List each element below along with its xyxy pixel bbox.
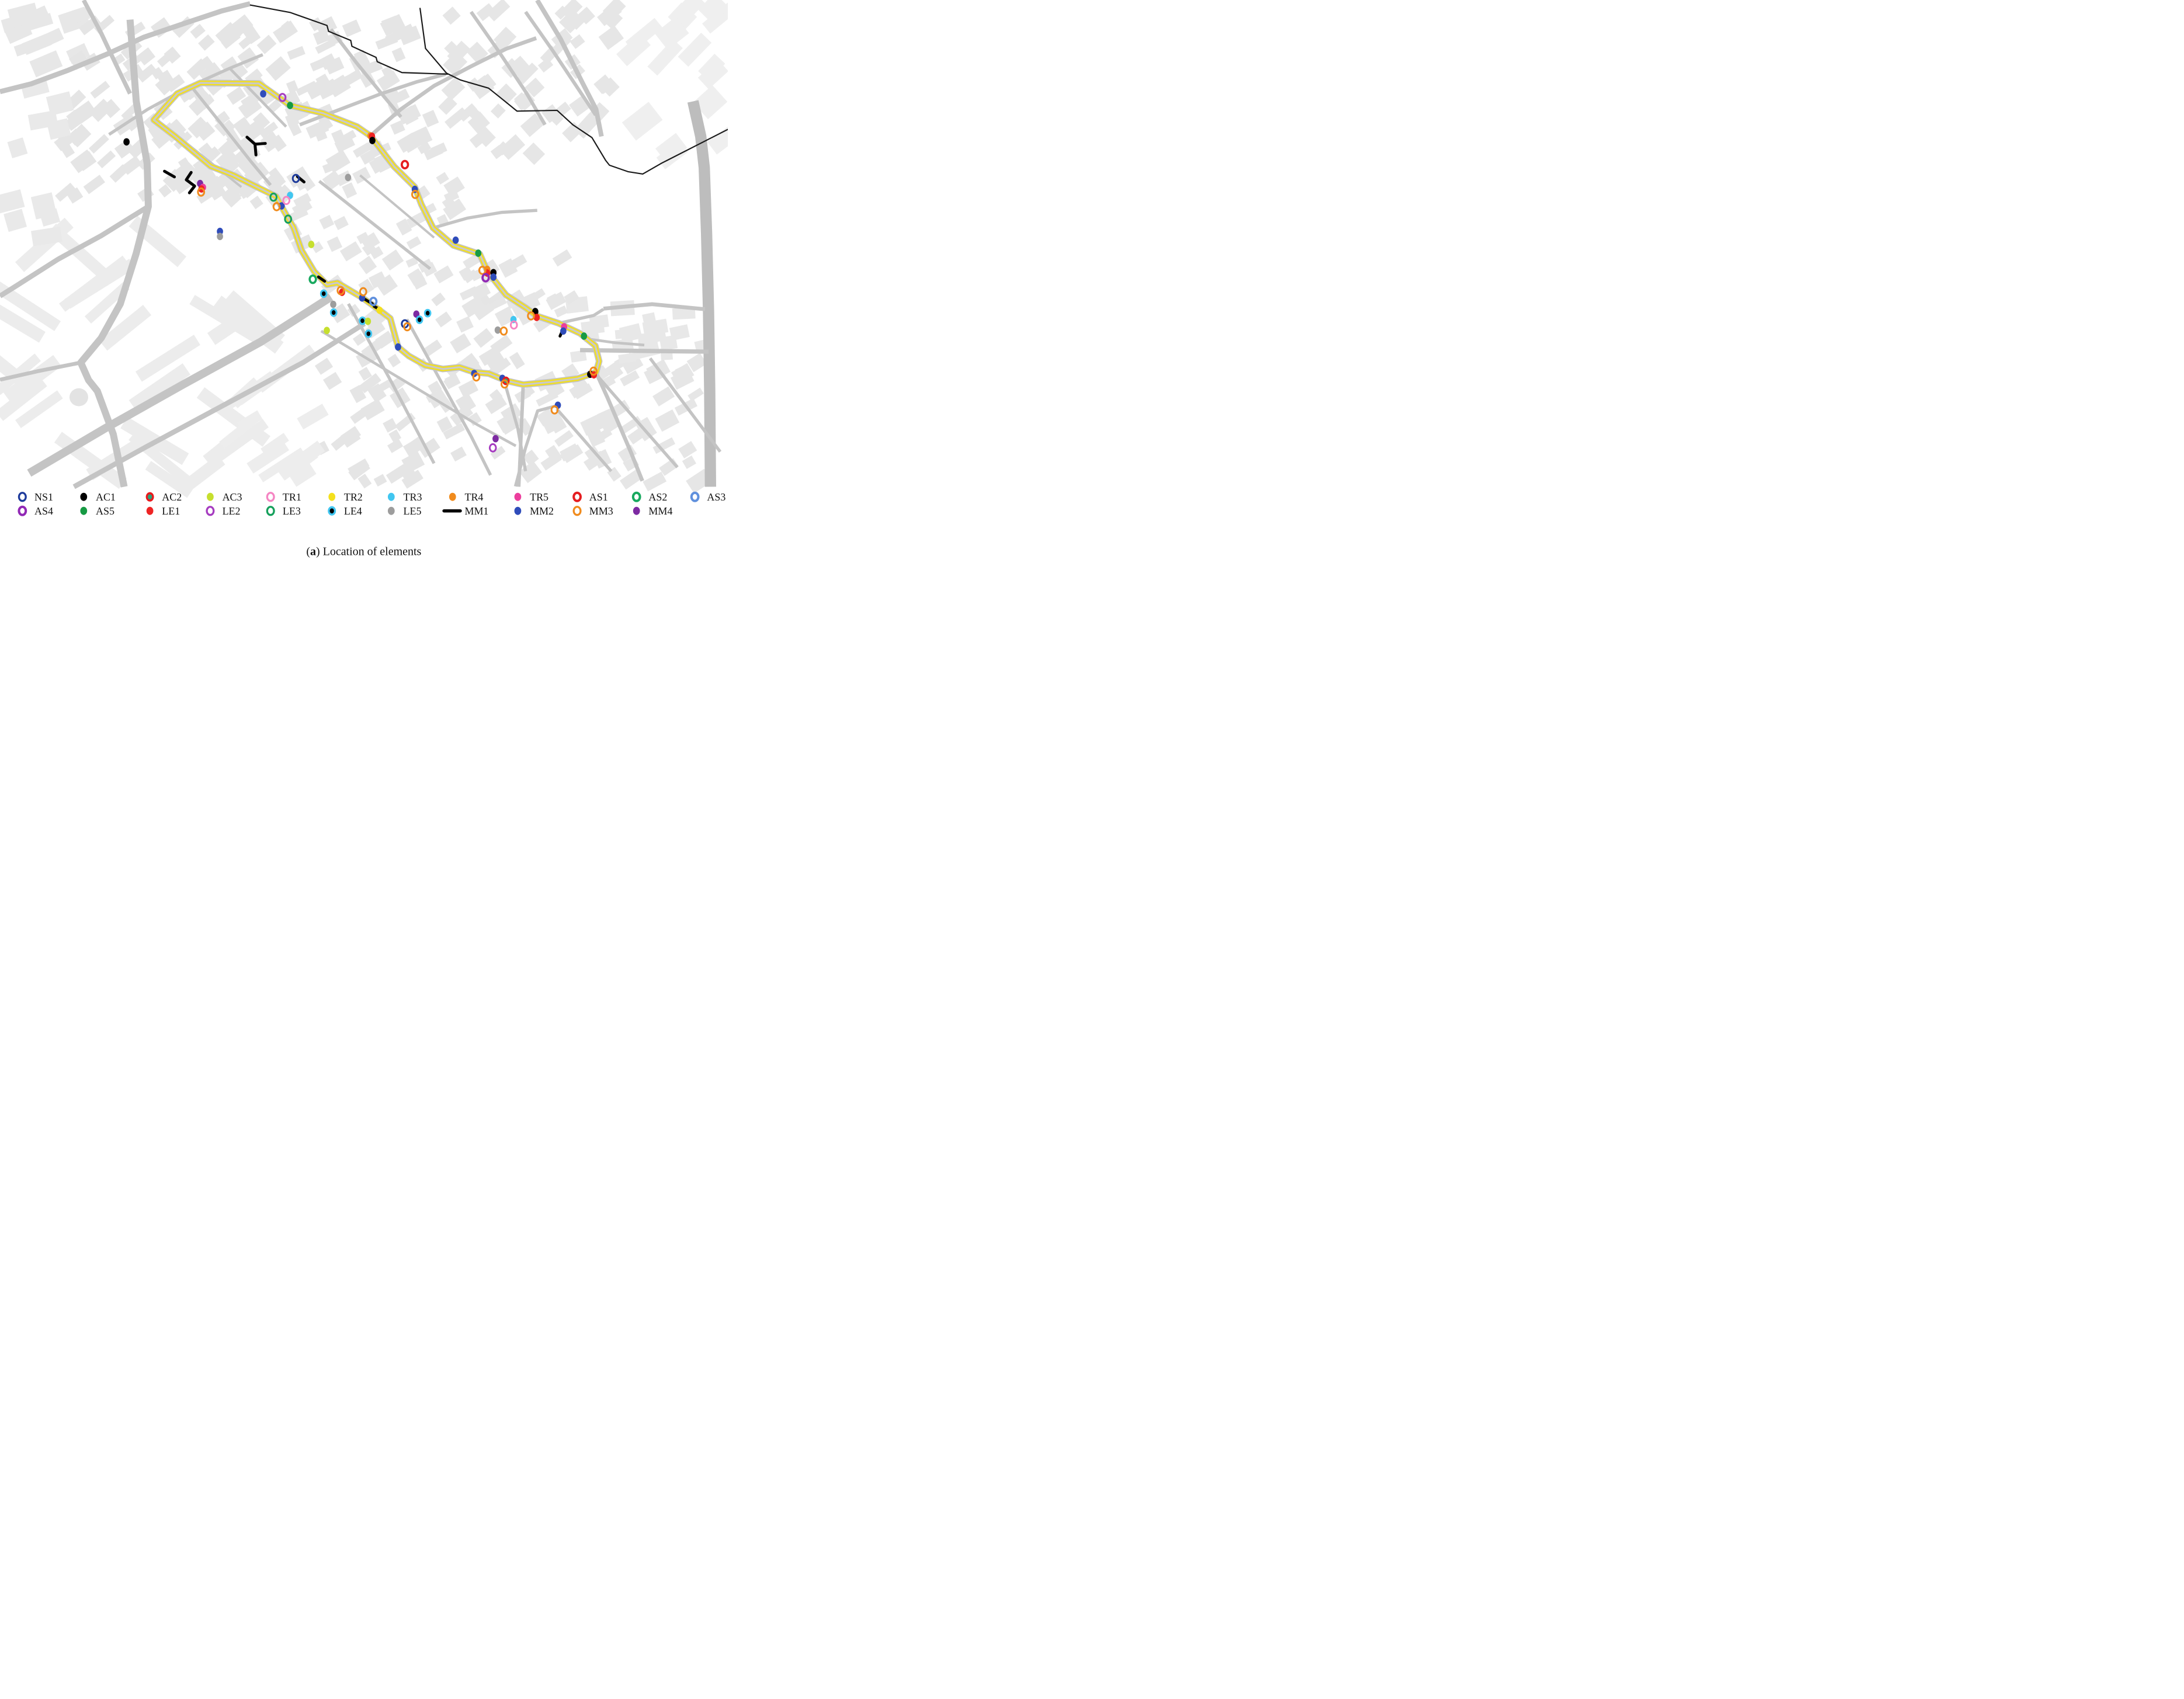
- marker-mm2: [560, 327, 567, 335]
- building: [7, 137, 27, 158]
- building: [387, 354, 401, 367]
- marker-le2: [207, 507, 214, 515]
- legend-label-le2: LE2: [223, 505, 241, 517]
- building: [327, 237, 343, 252]
- marker-tr3: [388, 493, 395, 501]
- legend-label-le4: LE4: [344, 505, 362, 517]
- legend-item-ac1: AC1: [80, 491, 116, 503]
- building: [89, 134, 109, 154]
- road: [81, 20, 148, 487]
- building: [14, 41, 34, 57]
- building: [622, 102, 663, 140]
- marker-ring: [692, 493, 699, 501]
- building: [266, 56, 291, 81]
- marker-as1: [574, 493, 581, 501]
- building: [450, 447, 467, 462]
- marker-tr1: [267, 493, 274, 501]
- building: [323, 372, 342, 390]
- marker-ns1: [19, 493, 26, 501]
- building: [435, 311, 452, 327]
- marker-dot: [80, 507, 87, 515]
- marker-dot: [475, 249, 481, 257]
- building: [473, 328, 494, 348]
- marker-le4: [320, 289, 328, 298]
- road: [321, 331, 516, 446]
- marker-le5: [330, 301, 336, 308]
- marker-inner: [148, 494, 152, 499]
- legend-label-mm2: MM2: [530, 505, 554, 517]
- mm1-line: [255, 144, 256, 155]
- building: [491, 446, 506, 459]
- building: [442, 6, 460, 25]
- legend-label-mm1: MM1: [464, 505, 488, 517]
- marker-dot: [308, 241, 315, 248]
- marker-as2: [633, 493, 640, 501]
- legend-item-le5: LE5: [388, 505, 421, 517]
- marker-inner: [360, 318, 364, 323]
- marker-dot: [449, 493, 456, 501]
- building: [190, 24, 206, 39]
- legend-item-tr3: TR3: [388, 491, 422, 503]
- building: [553, 249, 572, 266]
- legend-item-tr1: TR1: [267, 491, 301, 503]
- legend-label-tr3: TR3: [403, 491, 422, 503]
- legend-item-le4: LE4: [328, 505, 362, 517]
- marker-le4: [330, 308, 338, 317]
- building: [570, 34, 585, 49]
- marker-mm2: [453, 237, 459, 244]
- legend-item-as5: AS5: [80, 505, 114, 517]
- marker-dot: [287, 102, 293, 109]
- building: [599, 25, 624, 50]
- legend-label-as3: AS3: [707, 491, 725, 503]
- figure-page: NS1AC1AC2AC3TR1TR2TR3TR4TR5AS1AS2AS3AS4A…: [0, 0, 728, 567]
- building: [315, 357, 333, 374]
- building: [4, 209, 27, 232]
- marker-dot: [490, 273, 496, 281]
- building: [31, 192, 57, 219]
- marker-dot: [260, 90, 266, 98]
- marker-le4: [424, 309, 432, 318]
- building: [198, 34, 214, 51]
- legend-item-mm1: MM1: [444, 505, 488, 517]
- legend-item-tr5: TR5: [515, 491, 549, 503]
- marker-le4: [328, 506, 336, 516]
- legend-label-le1: LE1: [162, 505, 180, 517]
- legend-label-as4: AS4: [34, 505, 53, 517]
- legend-label-as5: AS5: [96, 505, 114, 517]
- marker-dot: [123, 138, 130, 146]
- marker-dot: [515, 507, 522, 515]
- legend-item-le2: LE2: [207, 505, 240, 517]
- marker-ring: [574, 493, 581, 501]
- legend-label-ns1: NS1: [34, 491, 53, 503]
- building: [496, 84, 517, 105]
- marker-mm2: [260, 90, 266, 98]
- marker-dot: [207, 493, 214, 501]
- marker-dot: [376, 307, 383, 314]
- marker-dot: [453, 237, 459, 244]
- marker-mm4: [633, 507, 640, 515]
- marker-as3: [692, 493, 699, 501]
- marker-as4: [19, 507, 26, 515]
- marker-ring: [267, 493, 274, 501]
- marker-tr2: [328, 493, 335, 501]
- marker-le5: [388, 507, 395, 515]
- legend-label-as2: AS2: [648, 491, 667, 503]
- legend-label-mm4: MM4: [648, 505, 672, 517]
- legend-item-mm3: MM3: [574, 505, 613, 517]
- legend-label-tr1: TR1: [283, 491, 301, 503]
- legend-item-ac2: AC2: [146, 491, 182, 503]
- marker-ring: [489, 444, 496, 451]
- road: [526, 12, 596, 115]
- building: [382, 249, 404, 270]
- building: [438, 96, 457, 115]
- building: [342, 19, 362, 37]
- building: [137, 47, 155, 65]
- subfigure-caption: (a) Location of elements: [306, 546, 421, 558]
- building: [250, 196, 263, 209]
- building: [652, 387, 675, 406]
- marker-inner: [322, 291, 326, 296]
- marker-dot: [388, 493, 395, 501]
- marker-as5: [581, 332, 587, 340]
- legend-item-le1: LE1: [147, 505, 180, 517]
- legend-item-ns1: NS1: [19, 491, 53, 503]
- marker-dot: [330, 301, 336, 308]
- legend-label-ac3: AC3: [223, 491, 242, 503]
- marker-mm2: [515, 507, 522, 515]
- marker-le4: [416, 315, 423, 324]
- building: [643, 472, 666, 492]
- marker-as5: [475, 249, 481, 257]
- marker-mm2: [490, 273, 496, 281]
- building: [31, 227, 63, 246]
- building: [433, 265, 453, 283]
- marker-ac2: [146, 492, 154, 502]
- building: [422, 110, 439, 127]
- marker-dot: [217, 233, 223, 241]
- marker-ac1: [123, 138, 130, 146]
- building: [84, 175, 105, 194]
- marker-dot: [80, 493, 87, 501]
- building: [97, 151, 116, 169]
- building: [70, 388, 88, 406]
- marker-dot: [345, 174, 352, 182]
- marker-tr5: [515, 493, 522, 501]
- marker-ring: [19, 493, 26, 501]
- building: [334, 216, 349, 230]
- legend-item-le3: LE3: [267, 505, 300, 517]
- marker-dot: [515, 493, 522, 501]
- marker-tr4: [449, 493, 456, 501]
- legend-label-tr4: TR4: [464, 491, 483, 503]
- marker-dot: [364, 318, 371, 325]
- legend-item-tr2: TR2: [328, 491, 363, 503]
- marker-as5: [80, 507, 87, 515]
- marker-mm3: [501, 327, 507, 335]
- legend-item-as2: AS2: [633, 491, 668, 503]
- marker-as1: [402, 161, 408, 169]
- legend-label-le5: LE5: [403, 505, 421, 517]
- legend-item-as1: AS1: [574, 491, 608, 503]
- building: [297, 404, 328, 429]
- marker-ring: [402, 161, 408, 169]
- building: [450, 333, 471, 353]
- building: [287, 46, 305, 60]
- building: [374, 474, 387, 487]
- marker-dot: [369, 137, 376, 144]
- marker-mm3: [574, 507, 581, 515]
- legend-label-ac1: AC1: [96, 491, 116, 503]
- marker-ring: [633, 493, 640, 501]
- marker-le1: [147, 507, 154, 515]
- marker-dot: [581, 332, 587, 340]
- building: [678, 441, 697, 458]
- building: [342, 182, 357, 199]
- marker-mm4: [492, 435, 499, 443]
- marker-dot: [560, 327, 567, 335]
- map-figure: NS1AC1AC2AC3TR1TR2TR3TR4TR5AS1AS2AS3AS4A…: [0, 0, 728, 567]
- marker-as2: [310, 276, 316, 283]
- legend-item-as4: AS4: [19, 505, 53, 517]
- marker-ring: [310, 276, 316, 283]
- building: [431, 293, 445, 307]
- building: [436, 172, 449, 184]
- marker-ring: [207, 507, 214, 515]
- legend: NS1AC1AC2AC3TR1TR2TR3TR4TR5AS1AS2AS3AS4A…: [19, 491, 725, 517]
- legend-item-tr4: TR4: [449, 491, 484, 503]
- marker-dot: [492, 435, 499, 443]
- legend-label-as1: AS1: [589, 491, 608, 503]
- building: [523, 143, 545, 165]
- marker-tr2: [376, 307, 383, 314]
- marker-inner: [426, 311, 430, 315]
- legend-item-as3: AS3: [692, 491, 726, 503]
- marker-le4: [364, 329, 372, 338]
- marker-inner: [330, 508, 334, 513]
- marker-mm2: [395, 343, 401, 351]
- building: [487, 0, 510, 22]
- legend-label-le3: LE3: [283, 505, 301, 517]
- building: [46, 91, 74, 116]
- marker-dot: [147, 507, 154, 515]
- legend-label-mm3: MM3: [589, 505, 613, 517]
- building: [392, 47, 406, 62]
- legend-item-mm4: MM4: [633, 505, 673, 517]
- building: [341, 69, 363, 87]
- building: [509, 352, 525, 370]
- building: [319, 215, 334, 230]
- marker-dot: [324, 326, 330, 334]
- marker-inner: [418, 317, 422, 322]
- marker-dot: [328, 493, 335, 501]
- marker-ac3: [308, 241, 315, 248]
- marker-ac1: [369, 137, 376, 144]
- marker-ac3: [324, 326, 330, 334]
- marker-ring: [574, 507, 581, 515]
- building: [340, 241, 362, 261]
- marker-dot: [395, 343, 401, 351]
- marker-inner: [366, 331, 370, 336]
- marker-inner: [332, 310, 336, 315]
- legend-item-mm2: MM2: [515, 505, 554, 517]
- marker-as5: [287, 102, 293, 109]
- marker-le2: [489, 444, 496, 451]
- marker-ac3: [364, 318, 371, 325]
- marker-le5: [217, 233, 223, 241]
- marker-le5: [345, 174, 352, 182]
- legend-label-tr5: TR5: [530, 491, 548, 503]
- building: [407, 237, 422, 249]
- legend-label-tr2: TR2: [344, 491, 363, 503]
- building: [456, 316, 474, 332]
- building: [554, 430, 574, 447]
- marker-ac3: [207, 493, 214, 501]
- marker-dot: [388, 507, 395, 515]
- marker-le3: [267, 507, 274, 515]
- caption-letter: a: [310, 546, 316, 558]
- legend-item-ac3: AC3: [207, 491, 242, 503]
- marker-ring: [267, 507, 274, 515]
- building: [688, 388, 704, 402]
- legend-label-ac2: AC2: [162, 491, 182, 503]
- marker-ac1: [80, 493, 87, 501]
- building: [491, 103, 506, 119]
- building: [655, 409, 679, 432]
- marker-ring: [19, 507, 26, 515]
- building: [90, 81, 110, 98]
- building: [669, 324, 690, 341]
- marker-dot: [633, 507, 640, 515]
- marker-ring: [501, 327, 507, 335]
